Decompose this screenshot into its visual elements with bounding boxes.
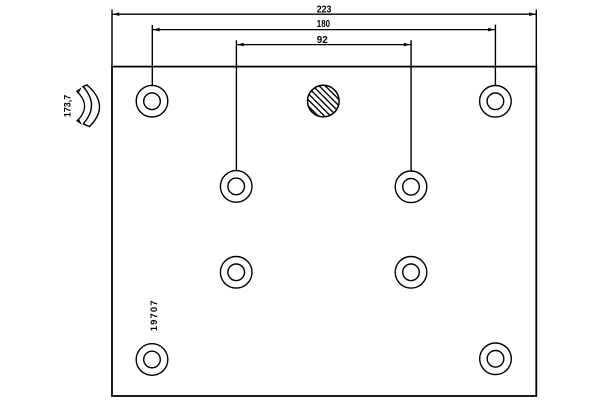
svg-text:223: 223	[317, 4, 332, 16]
svg-text:180: 180	[317, 18, 330, 30]
svg-text:173,7: 173,7	[62, 95, 72, 118]
svg-text:92: 92	[317, 34, 328, 46]
svg-text:19707: 19707	[149, 299, 160, 331]
